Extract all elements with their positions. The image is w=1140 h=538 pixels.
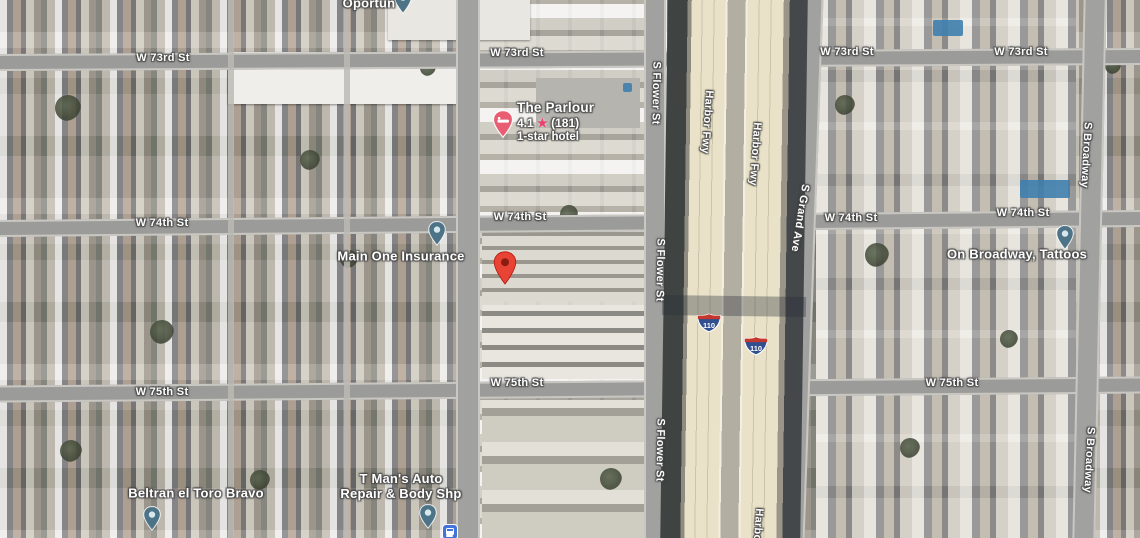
poi-label-t-mans-auto[interactable]: T Man's Auto Repair & Body Shp <box>340 471 461 501</box>
poi-pin-t-mans-auto[interactable] <box>419 504 437 529</box>
poi-pin-icon <box>428 221 446 246</box>
overpass-shadow <box>662 295 806 317</box>
street-label-w74th: W 74th St <box>136 217 189 229</box>
road-vertical <box>456 0 480 538</box>
tree-patch <box>55 95 81 121</box>
pool <box>623 83 632 92</box>
street-label-w75th: W 75th St <box>491 377 544 389</box>
commercial-block-texture <box>816 0 1076 538</box>
svg-text:110: 110 <box>703 321 715 330</box>
tree-patch <box>300 150 320 170</box>
blue-roof <box>1020 180 1070 198</box>
poi-pin-beltran[interactable] <box>143 506 161 531</box>
street-label-flower: S Flower St <box>653 238 666 301</box>
blue-roof <box>933 20 963 36</box>
bus-stop-icon[interactable] <box>442 524 458 538</box>
hotel-label-parlour[interactable]: The Parlour 4.1 ★ (181) 1-star hotel <box>517 100 594 143</box>
street-label-w73rd: W 73rd St <box>136 52 189 64</box>
tree-patch <box>1000 330 1018 348</box>
poi-pin-main-one-insurance[interactable] <box>428 221 446 246</box>
street-label-w75th: W 75th St <box>136 386 189 398</box>
street-label-flower: S Flower St <box>649 61 662 124</box>
poi-pin-icon <box>394 0 412 14</box>
poi-label-beltran[interactable]: Beltran el Toro Bravo <box>128 486 263 501</box>
poi-label-main-one-insurance[interactable]: Main One Insurance <box>337 249 464 264</box>
hotel-category: 1-star hotel <box>517 131 594 143</box>
building-roof <box>482 305 644 379</box>
street-label-w74th: W 74th St <box>825 212 878 224</box>
destination-pin[interactable] <box>493 251 517 285</box>
tree-patch <box>600 468 622 490</box>
street-label-w74th: W 74th St <box>494 211 547 223</box>
tree-patch <box>150 320 174 344</box>
poi-label-oportun[interactable]: Oportun <box>343 0 396 11</box>
tree-patch <box>60 440 82 462</box>
tree-patch <box>900 438 920 458</box>
building-roof <box>482 400 644 538</box>
poi-label-on-broadway-tattoos[interactable]: On Broadway, Tattoos <box>947 247 1087 262</box>
interstate-110-shield-icon: 110 <box>744 337 768 356</box>
poi-pin-icon <box>419 504 437 529</box>
street-label-w73rd: W 73rd St <box>820 46 873 58</box>
tree-patch <box>865 243 889 267</box>
hotel-rating: 4.1 ★ (181) <box>517 116 594 130</box>
poi-label-line1: T Man's Auto <box>340 471 461 486</box>
satellite-map[interactable]: 110 110 W 73rd St W 73rd St W 73rd St W … <box>0 0 1140 538</box>
bus-wheels-glyph <box>446 535 453 537</box>
street-label-w74th: W 74th St <box>997 207 1050 219</box>
svg-text:110: 110 <box>750 344 762 353</box>
rating-value: 4.1 <box>517 116 534 130</box>
poi-label-line2: Repair & Body Shp <box>340 486 461 501</box>
street-label-w75th: W 75th St <box>926 377 979 389</box>
street-label-flower: S Flower St <box>653 418 666 481</box>
rating-star-icon: ★ <box>537 116 548 130</box>
tree-patch <box>835 95 855 115</box>
interstate-110-shield-icon: 110 <box>697 314 721 333</box>
destination-pin-icon <box>493 251 517 285</box>
poi-pin-oportun[interactable] <box>394 0 412 14</box>
hotel-pin-parlour[interactable] <box>493 110 514 138</box>
street-label-w73rd: W 73rd St <box>490 47 543 59</box>
alley <box>344 0 350 538</box>
bus-window-glyph <box>447 529 453 531</box>
street-label-w73rd: W 73rd St <box>994 46 1047 58</box>
hotel-bed-pin-icon <box>493 110 514 138</box>
poi-pin-icon <box>143 506 161 531</box>
review-count: (181) <box>551 116 579 130</box>
hotel-name: The Parlour <box>517 100 594 115</box>
harbor-freeway <box>660 0 808 538</box>
alley <box>228 0 234 538</box>
